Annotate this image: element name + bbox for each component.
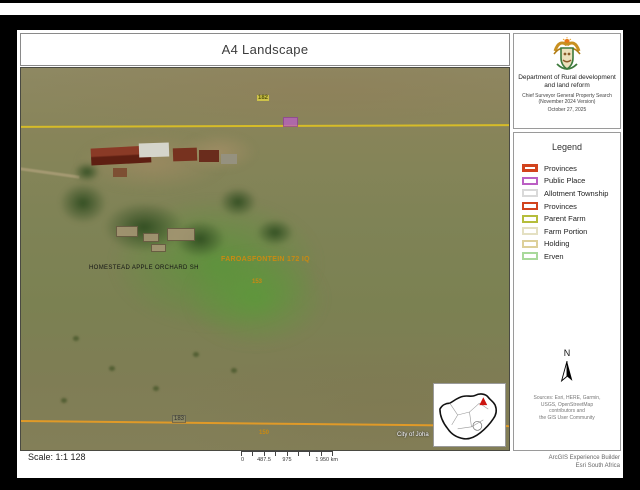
report-subtitle-line2: (November 2024 Version) bbox=[539, 99, 596, 105]
tree-cluster bbox=[252, 216, 298, 249]
parcel-label-182: 182 bbox=[257, 95, 269, 101]
legend-item-label: Farm Portion bbox=[544, 227, 587, 236]
department-name-line2: and land reform bbox=[544, 82, 590, 90]
header-panel: Department of Rural development and land… bbox=[513, 33, 621, 129]
legend-item-label: Parent Farm bbox=[544, 214, 586, 223]
farm-building-white-roof bbox=[139, 142, 169, 157]
app-canvas: A4 Landscape bbox=[0, 0, 640, 490]
legend-item-label: Provinces bbox=[544, 164, 577, 173]
north-arrow-label: N bbox=[514, 348, 620, 358]
legend-swatch-7 bbox=[522, 252, 538, 260]
top-strip bbox=[0, 3, 640, 15]
farm-building-red-roof bbox=[199, 150, 219, 162]
sources-attribution: Sources: Esri, HERE, Garmin, USGS, OpenS… bbox=[514, 395, 620, 421]
map-frame[interactable]: 182 FAROASFONTEIN 172 IQ 153 HOMESTEAD A… bbox=[20, 67, 510, 451]
print-preview-page: A4 Landscape bbox=[17, 30, 623, 478]
bush bbox=[153, 386, 159, 391]
tree-cluster bbox=[215, 184, 261, 220]
scale-tick-0: 0 bbox=[241, 457, 244, 463]
page-title: A4 Landscape bbox=[222, 42, 309, 57]
bush bbox=[61, 398, 67, 403]
map-title-box: A4 Landscape bbox=[20, 33, 510, 66]
south-africa-outline bbox=[434, 384, 505, 446]
legend-item-label: Public Place bbox=[544, 176, 585, 185]
parcel-label-183: 183 bbox=[172, 415, 186, 423]
legend-swatch-3 bbox=[522, 202, 538, 210]
scale-tick-487: 487.5 bbox=[257, 457, 271, 463]
ruin-structure bbox=[116, 226, 138, 237]
sources-line: the GIS User Community bbox=[514, 415, 620, 422]
bush bbox=[73, 336, 79, 341]
legend-item: Provinces bbox=[514, 200, 620, 213]
bush bbox=[193, 352, 199, 357]
farm-shed bbox=[221, 154, 237, 164]
legend-swatch-5 bbox=[522, 227, 538, 235]
farm-building-red-roof bbox=[173, 148, 197, 162]
legend-swatch-0 bbox=[522, 164, 538, 172]
parcel-boundary-line-top bbox=[21, 124, 510, 128]
legend-item: Holding bbox=[514, 238, 620, 251]
legend-panel: Legend Provinces Public Place Allotment … bbox=[513, 132, 621, 451]
ruin-structure bbox=[167, 228, 195, 241]
scale-tick-1950: 1 950 km bbox=[315, 457, 338, 463]
bush bbox=[231, 368, 237, 373]
scale-bar: 0 487.5 975 1 950 km bbox=[241, 451, 333, 467]
city-label: City of Joha bbox=[397, 432, 429, 438]
scale-bar-ruler bbox=[241, 451, 333, 456]
legend-swatch-2 bbox=[522, 189, 538, 197]
parcel-label-153: 153 bbox=[252, 279, 262, 285]
legend-item: Allotment Township bbox=[514, 187, 620, 200]
legend-swatch-4 bbox=[522, 215, 538, 223]
legend-item: Provinces bbox=[514, 162, 620, 175]
legend-swatch-6 bbox=[522, 240, 538, 248]
farm-outbuilding bbox=[113, 168, 127, 177]
report-date: October 27, 2025 bbox=[548, 107, 587, 113]
legend-item: Farm Portion bbox=[514, 225, 620, 238]
legend-item-label: Erven bbox=[544, 252, 564, 261]
legend-item-label: Provinces bbox=[544, 202, 577, 211]
legend-item: Public Place bbox=[514, 175, 620, 188]
legend-title: Legend bbox=[514, 142, 620, 152]
app-credit-line2: Esri South Africa bbox=[549, 463, 620, 471]
department-name-line1: Department of Rural development bbox=[518, 74, 616, 82]
coat-of-arms-icon bbox=[549, 36, 585, 74]
scale-bar-labels: 0 487.5 975 1 950 km bbox=[241, 457, 333, 465]
legend-item-label: Holding bbox=[544, 239, 569, 248]
scale-text: Scale: 1:1 128 bbox=[28, 452, 86, 462]
legend-item: Parent Farm bbox=[514, 212, 620, 225]
app-credit-line1: ArcGIS Experience Builder bbox=[549, 455, 620, 463]
north-arrow-icon bbox=[558, 359, 576, 383]
app-credit: ArcGIS Experience Builder Esri South Afr… bbox=[549, 455, 620, 470]
parcel-label-150: 150 bbox=[259, 430, 269, 436]
overview-inset-map bbox=[433, 383, 506, 447]
scale-tick-975: 975 bbox=[282, 457, 291, 463]
north-arrow: N bbox=[514, 348, 620, 388]
legend-swatch-1 bbox=[522, 177, 538, 185]
public-place-parcel bbox=[283, 117, 298, 127]
farm-name-label: FAROASFONTEIN 172 IQ bbox=[221, 256, 310, 263]
legend-item-label: Allotment Township bbox=[544, 189, 608, 198]
bush bbox=[109, 366, 115, 371]
homestead-label: HOMESTEAD APPLE ORCHARD SH bbox=[89, 265, 199, 271]
legend-item: Erven bbox=[514, 250, 620, 263]
ruin-structure bbox=[143, 233, 159, 242]
ruin-structure bbox=[151, 244, 166, 252]
